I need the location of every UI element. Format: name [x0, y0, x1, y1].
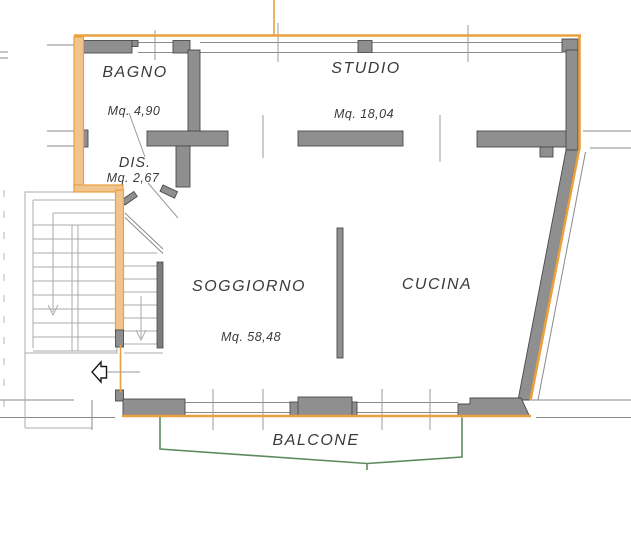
room-label-studio: STUDIO: [331, 60, 400, 77]
floor-plan-canvas: BAGNO Mq. 4,90 DIS. Mq. 2,67 STUDIO Mq. …: [0, 0, 631, 546]
floor-plan-drawing: BAGNO Mq. 4,90 DIS. Mq. 2,67 STUDIO Mq. …: [0, 0, 631, 546]
entrance-marker: [92, 362, 140, 382]
wall-studio-soggiorno: [298, 131, 403, 146]
room-labels: BAGNO Mq. 4,90 DIS. Mq. 2,67 STUDIO Mq. …: [102, 60, 472, 449]
wall-right-slanted: [518, 150, 578, 400]
wall-right-vertical: [566, 50, 578, 150]
wall-dis-top: [147, 131, 228, 146]
windows: [138, 23, 562, 430]
stair-treads: [33, 225, 117, 351]
external-staircase: [25, 192, 117, 428]
wall-bagno-studio: [188, 50, 200, 131]
wall-left-lower: [116, 190, 124, 332]
interior-walls: [74, 41, 577, 359]
room-label-cucina: CUCINA: [402, 276, 472, 293]
room-label-balcone: BALCONE: [273, 432, 360, 449]
entrance-arrow-icon: [92, 362, 107, 382]
room-label-dis: DIS.: [119, 155, 151, 171]
exterior-walls: [74, 0, 581, 416]
room-label-bagno: BAGNO: [102, 64, 167, 81]
window-ticks: [155, 23, 468, 430]
internal-staircase: [124, 213, 163, 353]
area-label-bagno: Mq. 4,90: [108, 104, 161, 118]
wall-left-upper: [74, 37, 84, 189]
area-label-dis: Mq. 2,67: [107, 171, 160, 185]
stair-down-arrow: [48, 213, 58, 315]
room-label-soggiorno: SOGGIORNO: [192, 278, 306, 295]
stair-parapet-wall: [157, 262, 163, 348]
area-label-studio: Mq. 18,04: [334, 107, 394, 121]
wall-studio-cucina: [477, 131, 577, 147]
wall-soggiorno-cucina: [337, 228, 343, 358]
area-label-soggiorno: Mq. 58,48: [221, 330, 281, 344]
door-leaf-lines: [125, 213, 163, 254]
boundary-orange-outline: [74, 0, 581, 416]
